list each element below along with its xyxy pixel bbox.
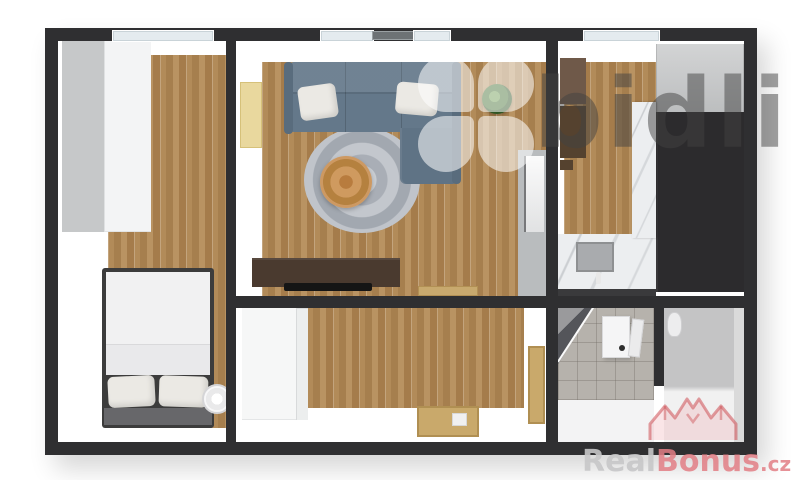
- bed-duvet: [106, 272, 210, 345]
- bidli-text: bidli: [534, 62, 790, 168]
- clover-petal: [478, 116, 534, 172]
- bed-duvet-fold: [106, 345, 210, 375]
- realbonus-rooftops-icon: [646, 394, 740, 444]
- realbonus-cz-text: .cz: [760, 452, 791, 476]
- wall-bedroom-divider: [226, 28, 236, 455]
- bed-throw-blanket: [104, 408, 212, 425]
- kitchen-sink: [576, 242, 614, 272]
- kitchen-window: [583, 30, 660, 42]
- doormat: [418, 286, 478, 296]
- toilet: [667, 312, 682, 337]
- bed-pillow-right: [158, 375, 208, 408]
- round-pouf: [320, 156, 372, 208]
- kitchen-faucet: [596, 272, 601, 284]
- realbonus-watermark-text: RealBonus.cz: [582, 444, 791, 480]
- living-room-window-right: [413, 30, 451, 42]
- tv: [284, 283, 372, 291]
- sofa-armrest-left: [284, 62, 293, 134]
- wardrobe: [104, 40, 151, 232]
- floor-plan-canvas: bidli RealBonus.cz: [0, 0, 800, 480]
- bidli-clover-icon: [418, 56, 534, 172]
- living-room-window-left: [320, 30, 374, 42]
- living-room-yellow-door: [240, 82, 262, 148]
- hallway-wardrobe-doors: [296, 308, 308, 420]
- bathroom-floor-white: [558, 400, 654, 443]
- clover-petal: [478, 56, 534, 112]
- basin-faucet: [619, 345, 625, 351]
- clover-petal: [418, 116, 474, 172]
- hallway-floor: [307, 308, 524, 408]
- clover-petal: [418, 56, 474, 112]
- bedroom-window: [112, 30, 214, 42]
- realbonus-real-text: Real: [582, 444, 656, 479]
- bathroom-door: [528, 346, 545, 424]
- wall-left: [45, 28, 58, 455]
- living-room-window-panel: [372, 31, 415, 40]
- entrance-door-handle: [452, 413, 467, 426]
- bidli-watermark-text: bidli: [534, 62, 800, 168]
- wall-horizontal-divider: [236, 296, 757, 308]
- kitchen-counter-edge: [558, 289, 656, 296]
- washbasin-vanity: [602, 316, 630, 358]
- sofa-pillow-left: [297, 83, 339, 122]
- realbonus-bonus-text: Bonus: [656, 444, 760, 479]
- bed-pillow-left: [107, 375, 156, 408]
- wall-wc-partition: [654, 308, 664, 386]
- entrance-door-open: [417, 406, 479, 437]
- wardrobe-side-panel: [62, 40, 106, 232]
